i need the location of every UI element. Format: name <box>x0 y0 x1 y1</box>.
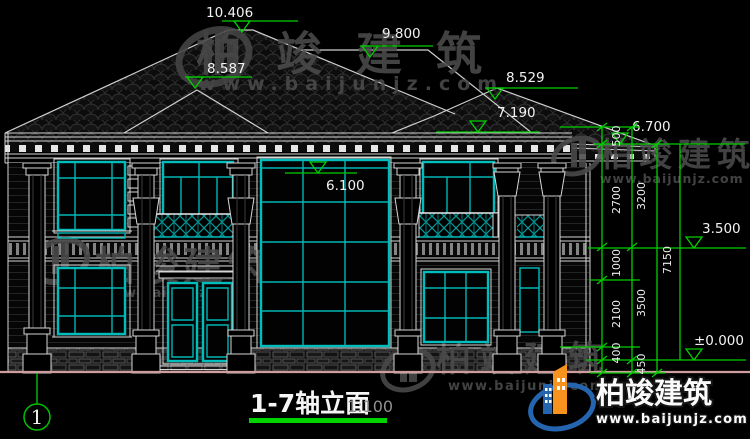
entrance-window-2f <box>160 159 238 219</box>
logo-url: www.baijunjz.com <box>596 412 748 427</box>
watermark-top-center: 柏竣建筑 www.baijunjz.com <box>171 20 516 95</box>
left-wing-window-1f <box>52 265 132 337</box>
curtain-wall <box>257 157 391 348</box>
chain-label-2700: 2700 <box>610 186 623 214</box>
right-wing-window-1f <box>520 268 539 332</box>
elevation-label: 6.100 <box>326 178 365 194</box>
chain-label-3200: 3200 <box>635 182 648 210</box>
chain-label-450: 450 <box>635 354 648 375</box>
elevation-label: 7.190 <box>497 105 536 121</box>
elevation-svg: 柏竣建筑 www.baijunjz.com 柏竣建筑 www.baijunjz.… <box>0 0 750 439</box>
title-underline <box>249 418 387 423</box>
chain-label-500: 500 <box>610 126 623 147</box>
logo-brand: 柏竣建筑 <box>596 376 712 410</box>
axis-bubble-number: 1 <box>31 405 44 429</box>
elevation-label: 10.406 <box>206 5 253 21</box>
left-wing-window-2f <box>52 159 132 238</box>
chain-label-7150: 7150 <box>661 246 674 274</box>
drawing-scale: 1:100 <box>347 397 393 416</box>
chain-label-1000: 1000 <box>610 249 623 277</box>
right-bay-window-1f <box>421 269 491 345</box>
elevation-label: 3.500 <box>702 221 741 237</box>
right-bay-window-2f <box>420 159 498 219</box>
right-balcony <box>414 213 502 237</box>
elevation-label: 8.529 <box>506 70 545 86</box>
watermark-url: www.baijunjz.com <box>600 171 744 186</box>
chain-label-3500: 3500 <box>635 289 648 317</box>
elevation-label: 9.800 <box>382 26 421 42</box>
chain-label-400: 400 <box>610 343 623 364</box>
chain-label-2100: 2100 <box>610 300 623 328</box>
elevation-label: 8.587 <box>207 61 246 77</box>
cad-elevation-drawing: 柏竣建筑 www.baijunjz.com 柏竣建筑 www.baijunjz.… <box>0 0 750 439</box>
elevation-label: ±0.000 <box>694 333 744 349</box>
